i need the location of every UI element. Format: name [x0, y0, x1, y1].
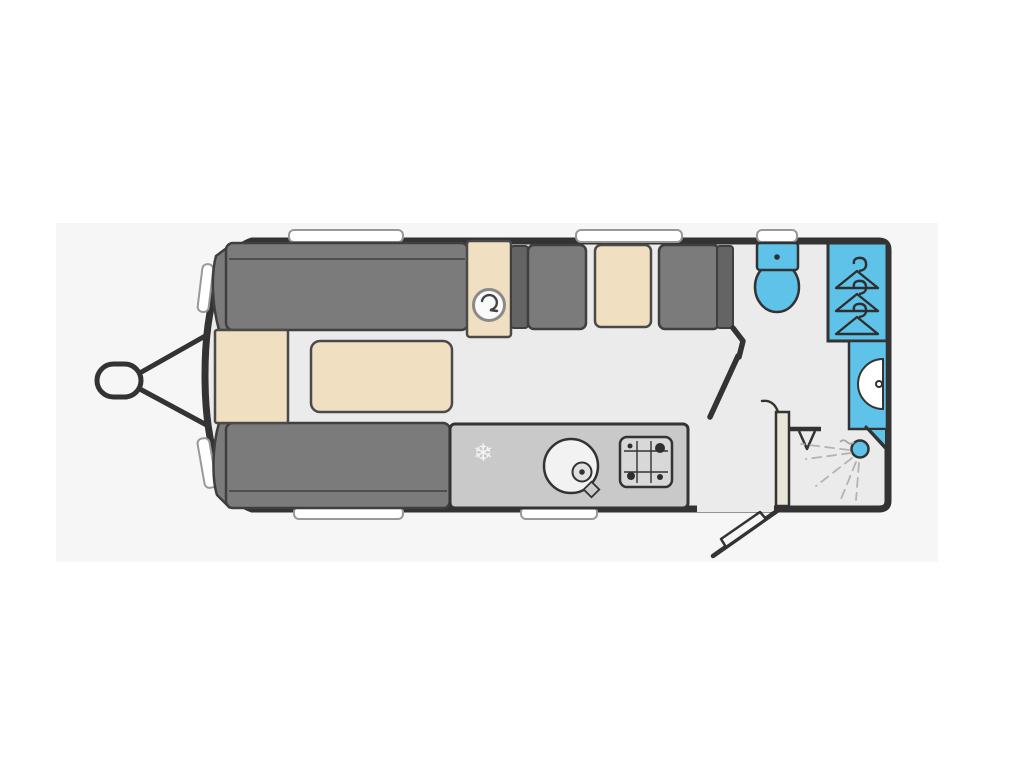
- front-chest: [215, 330, 288, 423]
- coffee-table: [311, 341, 452, 412]
- burner-small-2: [657, 474, 663, 480]
- burner-large-1: [655, 443, 665, 453]
- side-dinette: [511, 245, 733, 329]
- floorplan-svg: ❄: [0, 0, 1024, 768]
- front-lounge: [213, 243, 468, 508]
- dinette-table: [595, 245, 651, 327]
- shower-head-icon: [852, 441, 869, 458]
- doorway-opening: [697, 501, 774, 512]
- hitch-coupling: [97, 364, 141, 397]
- heater-cabinet: [467, 241, 511, 337]
- hob: [620, 437, 672, 487]
- fridge-snowflake-icon: ❄: [473, 439, 493, 467]
- top-sofa: [226, 243, 468, 330]
- window-top-front: [289, 230, 403, 242]
- sliding-door: [776, 412, 789, 506]
- burner-small-1: [628, 444, 633, 449]
- bottom-sofa: [226, 423, 450, 508]
- floorplan-page: ❄: [0, 0, 1024, 768]
- burner-large-2: [627, 472, 635, 480]
- window-top-middle: [576, 230, 682, 242]
- sink-tap-dot: [579, 469, 585, 475]
- dinette-armrest-left: [511, 246, 528, 328]
- kitchen: ❄: [450, 424, 688, 508]
- hob-body: [620, 437, 672, 487]
- dinette-armrest-right: [717, 246, 733, 328]
- dinette-seat-right: [659, 245, 719, 329]
- window-top-washroom: [757, 230, 797, 242]
- dinette-seat-left: [528, 245, 586, 329]
- toilet-flush-button: [774, 254, 780, 260]
